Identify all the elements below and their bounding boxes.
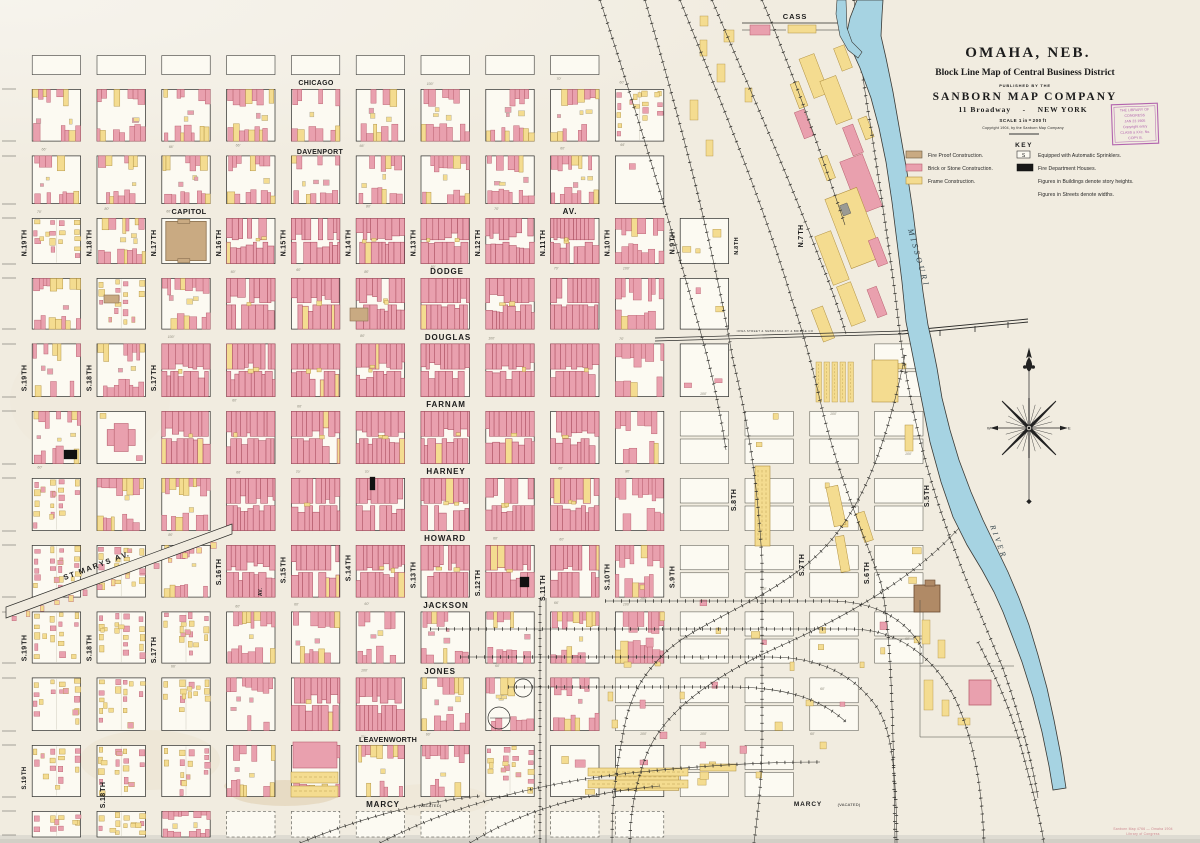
svg-text:S.18 TH: S.18 TH <box>86 635 93 661</box>
svg-text:N.11 TH: N.11 TH <box>540 230 547 256</box>
svg-text:60': 60' <box>294 603 299 607</box>
svg-text:66': 66' <box>236 471 241 475</box>
svg-text:80': 80' <box>700 657 705 661</box>
svg-text:Fire Department Houses.: Fire Department Houses. <box>1038 166 1096 172</box>
svg-text:100': 100' <box>640 597 647 601</box>
svg-text:N.14 TH: N.14 TH <box>346 230 353 257</box>
svg-text:JAN 23 1905: JAN 23 1905 <box>1124 119 1145 124</box>
svg-text:Brick or Stone Construction.: Brick or Stone Construction. <box>928 166 993 172</box>
svg-text:N.18 TH: N.18 TH <box>86 230 93 257</box>
svg-text:COPY B.: COPY B. <box>1128 136 1143 141</box>
svg-text:S.19 TH: S.19 TH <box>22 365 29 391</box>
svg-text:N.9 TH: N.9 TH <box>670 232 677 255</box>
svg-text:100': 100' <box>623 267 630 271</box>
svg-text:100': 100' <box>168 335 175 339</box>
svg-text:E: E <box>1068 426 1071 431</box>
svg-text:N.13 TH: N.13 TH <box>410 230 417 257</box>
svg-text:S.16 TH: S.16 TH <box>216 559 223 585</box>
svg-text:DOUGLAS: DOUGLAS <box>425 333 471 342</box>
svg-text:100': 100' <box>427 82 434 86</box>
svg-text:60': 60' <box>810 732 815 736</box>
svg-text:60': 60' <box>296 268 301 272</box>
svg-text:66': 66' <box>169 145 174 149</box>
svg-text:70': 70' <box>361 735 366 739</box>
svg-text:OMAHA, NEB.: OMAHA, NEB. <box>965 45 1090 61</box>
svg-text:70': 70' <box>37 210 42 214</box>
svg-text:S.9 TH: S.9 TH <box>670 566 677 588</box>
svg-text:66': 66' <box>42 147 47 151</box>
svg-text:IOWA STREET & NEBRASKA RY & BR: IOWA STREET & NEBRASKA RY & BRIDGE CO <box>737 329 814 333</box>
svg-text:S.17 TH: S.17 TH <box>151 365 158 391</box>
svg-text:80': 80' <box>104 207 109 211</box>
svg-text:66': 66' <box>554 601 559 605</box>
svg-text:Figures in Streets denote widt: Figures in Streets denote widths. <box>1038 192 1114 198</box>
svg-text:S.15 TH: S.15 TH <box>281 557 288 583</box>
svg-text:80': 80' <box>625 469 630 473</box>
svg-text:Frame Construction.: Frame Construction. <box>928 179 975 185</box>
svg-text:70': 70' <box>365 470 370 474</box>
svg-text:N.7 TH: N.7 TH <box>798 225 805 248</box>
svg-text:S.11 TH: S.11 TH <box>540 575 547 601</box>
svg-text:N.19 TH: N.19 TH <box>22 230 29 257</box>
svg-text:DAVENPORT: DAVENPORT <box>297 149 344 156</box>
svg-text:MARCY: MARCY <box>366 800 400 809</box>
svg-text:80': 80' <box>427 604 432 608</box>
svg-text:100': 100' <box>623 602 630 606</box>
svg-text:S.5 TH: S.5 TH <box>924 485 931 507</box>
svg-text:66': 66' <box>360 144 365 148</box>
svg-text:60': 60' <box>560 147 565 151</box>
svg-text:60': 60' <box>820 687 825 691</box>
svg-text:S.18 TH: S.18 TH <box>100 782 107 808</box>
svg-text:Figures in Buildings denote st: Figures in Buildings denote story height… <box>1038 179 1134 185</box>
svg-text:S.18 TH: S.18 TH <box>86 365 93 391</box>
svg-text:Block Line Map of Central Busi: Block Line Map of Central Business Distr… <box>935 68 1115 78</box>
svg-text:Copyright 1904, by the Sanborn: Copyright 1904, by the Sanborn Map Compa… <box>982 126 1064 130</box>
svg-text:Library of Congress: Library of Congress <box>1126 832 1159 836</box>
svg-text:S.14 TH: S.14 TH <box>346 555 353 581</box>
svg-text:JONES: JONES <box>424 667 456 676</box>
svg-text:66': 66' <box>297 404 302 408</box>
svg-text:66': 66' <box>620 143 625 147</box>
svg-text:S.10 TH: S.10 TH <box>605 564 612 590</box>
svg-text:N.16 TH: N.16 TH <box>216 230 223 257</box>
svg-text:N.8 TH: N.8 TH <box>734 237 740 255</box>
svg-text:60': 60' <box>559 538 564 542</box>
svg-text:70': 70' <box>494 207 499 211</box>
svg-text:66': 66' <box>236 143 241 147</box>
svg-text:66': 66' <box>171 665 176 669</box>
svg-text:80': 80' <box>366 205 371 209</box>
svg-text:60': 60' <box>495 664 500 668</box>
svg-text:70': 70' <box>296 470 301 474</box>
svg-text:100': 100' <box>640 732 647 736</box>
svg-text:SCALE 1 in = 200 ft: SCALE 1 in = 200 ft <box>999 118 1046 123</box>
svg-text:S.19 TH: S.19 TH <box>22 635 29 661</box>
svg-text:70': 70' <box>556 77 561 81</box>
svg-text:66': 66' <box>166 209 171 213</box>
svg-text:100': 100' <box>700 392 707 396</box>
svg-text:CASS: CASS <box>783 12 807 21</box>
svg-text:LEAVENWORTH: LEAVENWORTH <box>359 735 417 744</box>
svg-text:60': 60' <box>493 537 498 541</box>
svg-text:100': 100' <box>905 452 912 456</box>
svg-text:CAPITOL: CAPITOL <box>171 207 206 216</box>
svg-text:Equipped with Automatic Sprink: Equipped with Automatic Sprinklers. <box>1038 153 1121 159</box>
svg-text:Copyright entry: Copyright entry <box>1123 124 1148 129</box>
svg-text:60': 60' <box>235 605 240 609</box>
svg-text:HARNEY: HARNEY <box>426 467 465 476</box>
svg-text:S.8 TH: S.8 TH <box>731 489 738 511</box>
svg-text:100': 100' <box>361 669 368 673</box>
svg-text:Fire Proof Construction.: Fire Proof Construction. <box>928 153 983 159</box>
svg-text:(VACATED): (VACATED) <box>838 802 861 807</box>
svg-text:60': 60' <box>426 732 431 736</box>
svg-text:60': 60' <box>231 270 236 274</box>
svg-text:PUBLISHED BY THE: PUBLISHED BY THE <box>999 83 1051 88</box>
svg-text:N.17 TH: N.17 TH <box>151 230 158 257</box>
svg-text:100': 100' <box>700 732 707 736</box>
svg-text:S.12 TH: S.12 TH <box>475 570 482 596</box>
svg-text:60': 60' <box>232 398 237 402</box>
svg-text:S.17 TH: S.17 TH <box>151 637 158 663</box>
svg-text:SANBORN MAP COMPANY: SANBORN MAP COMPANY <box>933 91 1118 103</box>
svg-text:60': 60' <box>364 602 369 606</box>
svg-text:Sanborn Map 4766 — Omaha 1904: Sanborn Map 4766 — Omaha 1904 <box>1113 827 1173 831</box>
svg-text:CHICAGO: CHICAGO <box>298 80 333 87</box>
svg-text:N.12 TH: N.12 TH <box>475 230 482 257</box>
svg-text:100': 100' <box>760 587 767 591</box>
svg-text:100': 100' <box>488 336 495 340</box>
svg-text:60': 60' <box>37 465 42 469</box>
svg-text:W: W <box>987 426 991 431</box>
svg-text:80': 80' <box>168 533 173 537</box>
svg-text:70': 70' <box>554 266 559 270</box>
svg-text:80': 80' <box>431 265 436 269</box>
svg-text:AV.: AV. <box>258 588 264 597</box>
svg-text:11 Broadway - NEW YORK: 11 Broadway - NEW YORK <box>958 105 1087 114</box>
svg-text:S.6 TH: S.6 TH <box>864 562 871 584</box>
svg-text:S.13 TH: S.13 TH <box>410 562 417 588</box>
svg-text:80': 80' <box>360 334 365 338</box>
svg-text:S.19 TH: S.19 TH <box>22 767 28 790</box>
svg-text:HOWARD: HOWARD <box>424 534 466 543</box>
svg-text:(VACATED): (VACATED) <box>419 803 442 808</box>
svg-text:80': 80' <box>364 270 369 274</box>
svg-text:70': 70' <box>619 337 624 341</box>
svg-text:FARNAM: FARNAM <box>426 400 466 409</box>
svg-text:MARCY: MARCY <box>794 801 822 808</box>
svg-text:60': 60' <box>558 466 563 470</box>
svg-text:KEY: KEY <box>1015 142 1033 149</box>
svg-text:CONGRESS: CONGRESS <box>1124 113 1145 118</box>
svg-text:N.10 TH: N.10 TH <box>605 230 612 257</box>
svg-text:AV.: AV. <box>563 207 578 216</box>
svg-text:S.7 TH: S.7 TH <box>799 554 806 576</box>
svg-text:N.15 TH: N.15 TH <box>281 230 288 257</box>
svg-text:100': 100' <box>830 412 837 416</box>
svg-text:60': 60' <box>905 637 910 641</box>
svg-text:60': 60' <box>619 81 624 85</box>
